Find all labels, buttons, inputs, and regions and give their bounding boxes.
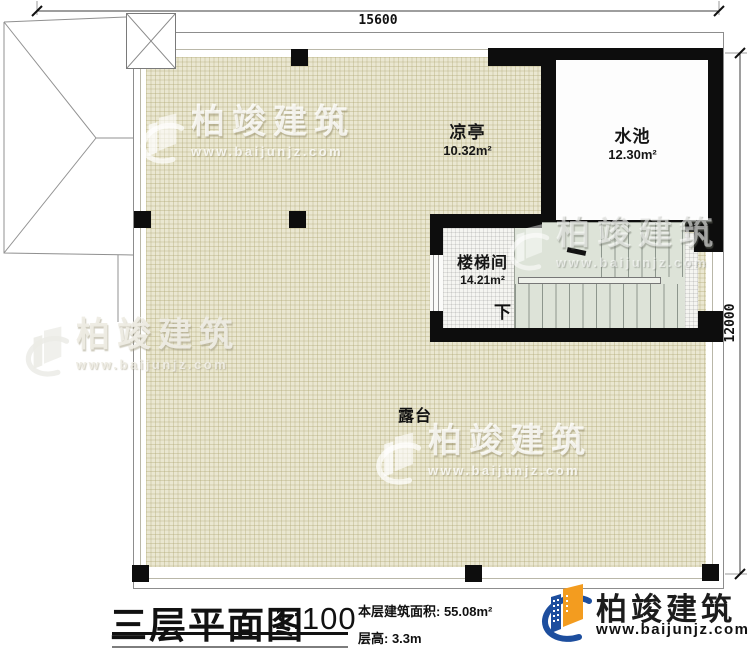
stairwell-wall-right-upper bbox=[694, 232, 723, 252]
dimension-top-value: 15600 bbox=[340, 13, 416, 28]
floor-plan-sheet: { "plan": { "dimensions": { "top": "1560… bbox=[0, 0, 750, 649]
column bbox=[291, 49, 308, 66]
pool-label: 水池 12.30m² bbox=[565, 128, 700, 162]
brand-logo-icon bbox=[533, 577, 593, 643]
stair-down-label: 下 bbox=[494, 298, 511, 323]
chimney-cross-icon bbox=[127, 14, 175, 68]
brand-website: www.baijunjz.com bbox=[596, 621, 749, 638]
roof-outline bbox=[4, 17, 134, 322]
stairwell-wall-bottom bbox=[430, 328, 706, 342]
stairwell-wall-left-upper bbox=[430, 214, 443, 255]
column bbox=[289, 211, 306, 228]
stair-treads-lower bbox=[515, 284, 686, 329]
pavilion-name: 凉亭 bbox=[450, 124, 486, 143]
pool-area: 12.30m² bbox=[608, 148, 656, 162]
stairwell-wall-right-lower bbox=[698, 311, 723, 342]
stairwell-wall-top bbox=[430, 214, 542, 228]
pavilion-area: 10.32m² bbox=[443, 144, 491, 158]
stairwell-label: 楼梯间 14.21m² bbox=[440, 255, 525, 287]
title-underline-secondary bbox=[112, 646, 348, 648]
stair-treads-upper bbox=[601, 223, 686, 277]
stair-handrail bbox=[518, 277, 661, 284]
stair-flight-area bbox=[514, 222, 685, 328]
stairwell-name: 楼梯间 bbox=[457, 255, 508, 273]
column bbox=[134, 211, 151, 228]
floor-height-note: 层高: 3.3m bbox=[358, 625, 492, 652]
sheet-notes: 本层建筑面积: 55.08m² 层高: 3.3m bbox=[358, 598, 492, 652]
column bbox=[132, 565, 149, 582]
pavilion-label: 凉亭 10.32m² bbox=[420, 124, 515, 158]
column bbox=[702, 564, 719, 581]
chimney-square bbox=[126, 13, 176, 69]
dimension-right-value: 12000 bbox=[723, 291, 739, 355]
terrace-label: 露台 bbox=[398, 402, 432, 426]
pool-name: 水池 bbox=[615, 128, 651, 147]
floor-area-note: 本层建筑面积: 55.08m² bbox=[358, 598, 492, 625]
title-underline bbox=[112, 632, 348, 635]
pool-wall-step bbox=[488, 48, 544, 66]
stairwell-area: 14.21m² bbox=[460, 274, 505, 287]
column bbox=[465, 565, 482, 582]
